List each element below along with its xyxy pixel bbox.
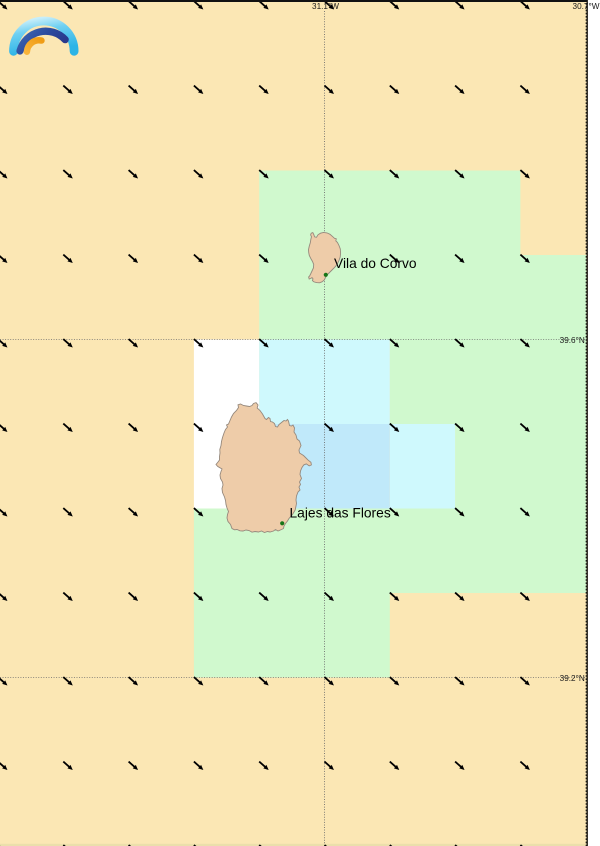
svg-text:Vila do Corvo: Vila do Corvo <box>334 256 417 271</box>
svg-text:31.1°W: 31.1°W <box>312 2 339 11</box>
svg-text:30.7°W: 30.7°W <box>573 2 600 11</box>
svg-text:Lajes das Flores: Lajes das Flores <box>290 506 391 521</box>
svg-text:39.6°N: 39.6°N <box>560 336 585 345</box>
svg-text:39.2°N: 39.2°N <box>560 674 585 683</box>
